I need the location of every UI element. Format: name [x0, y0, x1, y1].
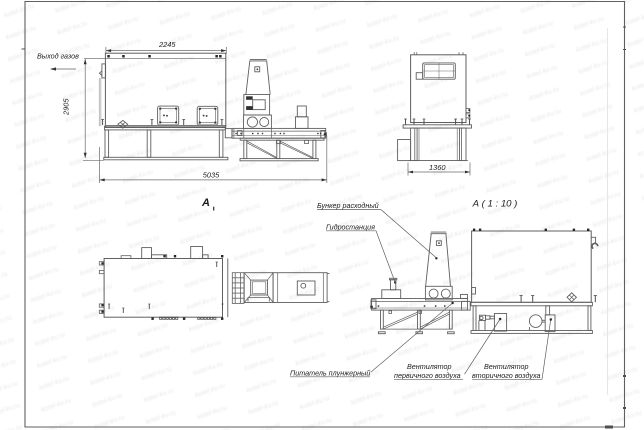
svg-text:Выход газов: Выход газов: [37, 52, 79, 61]
svg-text:вторичного воздуха: вторичного воздуха: [472, 371, 540, 380]
svg-text:Вентилятор: Вентилятор: [407, 362, 452, 371]
svg-text:1360: 1360: [429, 163, 446, 172]
svg-text:5035: 5035: [203, 171, 220, 180]
svg-text:первичного воздуха: первичного воздуха: [394, 371, 461, 380]
svg-text:2245: 2245: [158, 40, 176, 49]
svg-text:А: А: [201, 197, 210, 209]
svg-text:А ( 1 : 10 ): А ( 1 : 10 ): [472, 198, 518, 209]
svg-text:Гидростанция: Гидростанция: [326, 222, 375, 231]
svg-text:Бункер расходный: Бункер расходный: [317, 201, 379, 210]
svg-text:2905: 2905: [62, 98, 71, 116]
svg-text:Вентилятор: Вентилятор: [484, 362, 529, 371]
svg-text:Питатель плунжерный: Питатель плунжерный: [290, 368, 370, 377]
